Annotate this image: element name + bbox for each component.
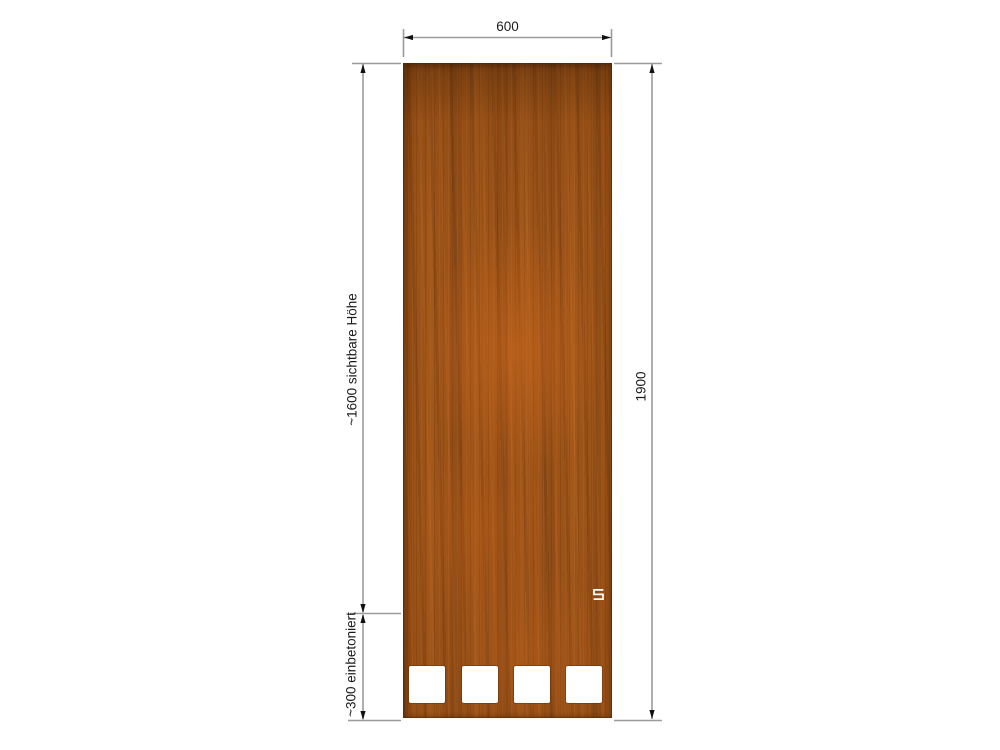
technical-drawing-canvas: 600 1900 ~1600 sichtbare Höhe ~300 einbe… [0,0,1000,750]
cutout-square-1 [409,666,445,703]
dimension-label-visible-height: ~1600 sichtbare Höhe [345,280,360,440]
dimension-label-width: 600 [403,19,612,34]
cutout-square-3 [514,666,550,703]
dimension-label-total-height: 1900 [634,337,649,437]
cutout-square-2 [462,666,498,703]
cutout-square-4 [566,666,602,703]
corten-panel [403,63,612,718]
brand-s-logo-icon [592,588,605,601]
dimension-label-embedded-depth: ~300 einbetoniert [344,605,359,725]
